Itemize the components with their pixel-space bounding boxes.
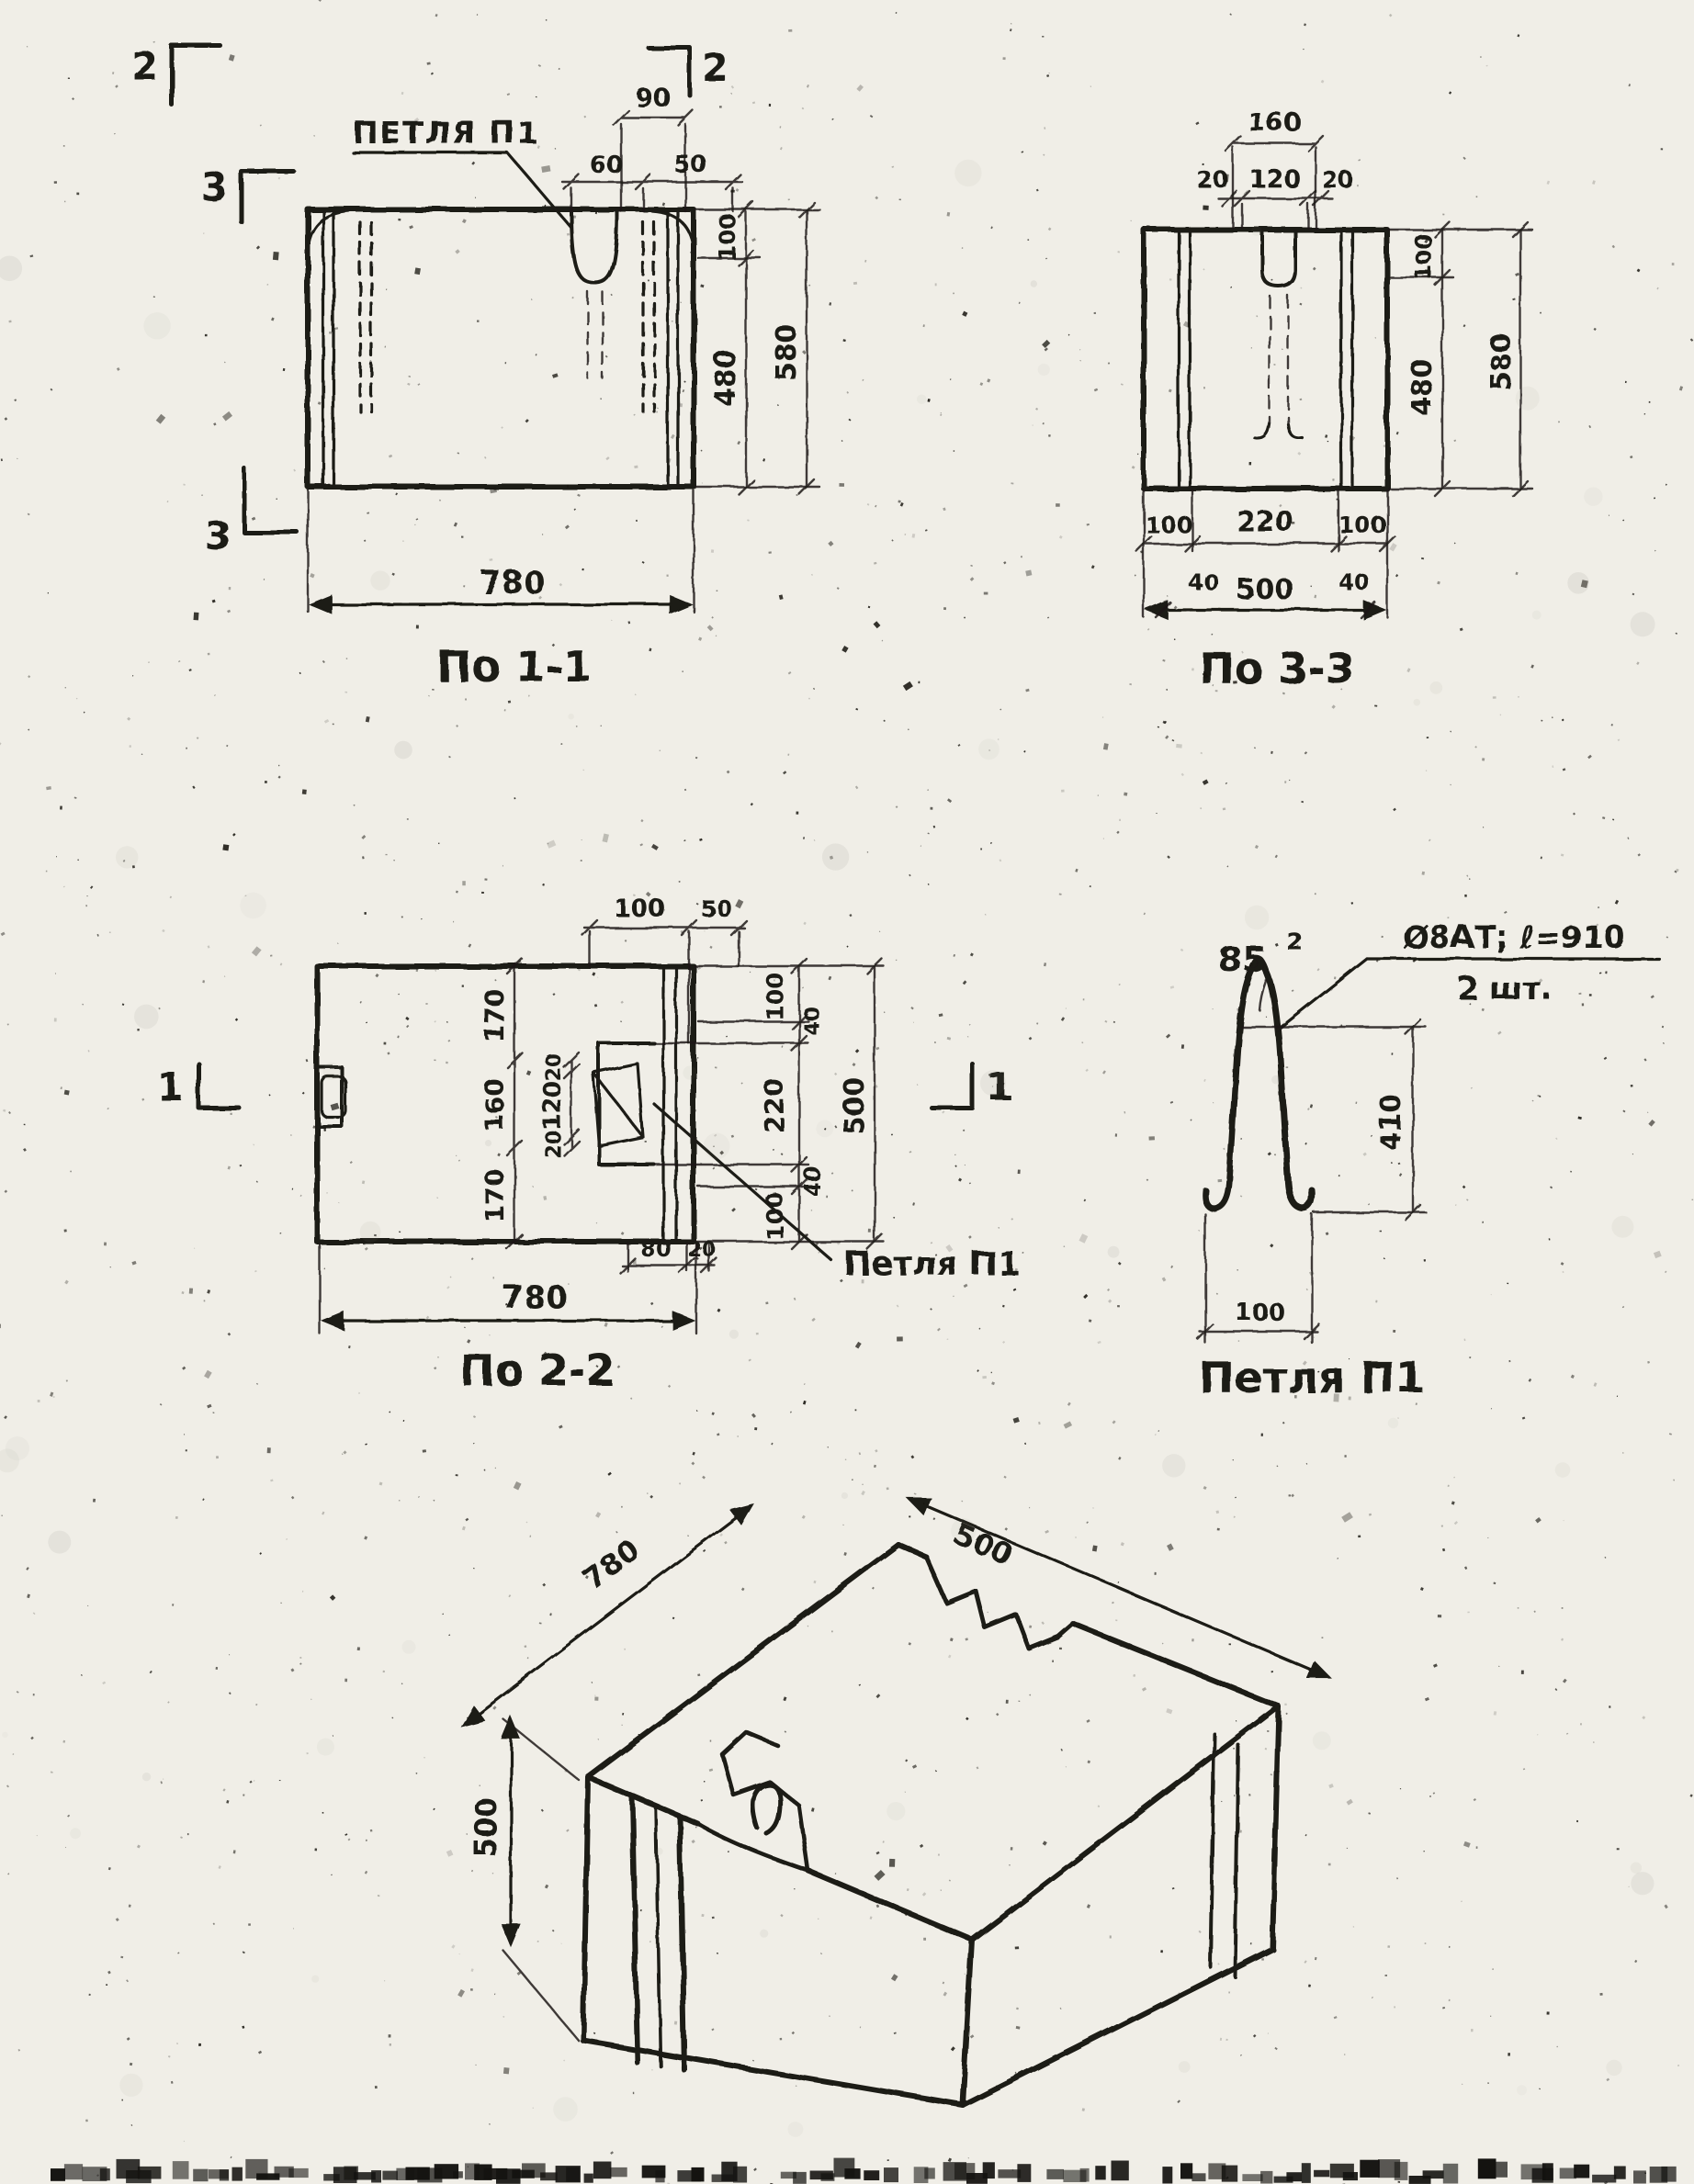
dim-label: 220 xyxy=(759,1079,789,1132)
dim-line-160 xyxy=(1225,136,1323,151)
dim-label: 480 xyxy=(710,350,742,408)
section-view-1-1: ПЕТЛЯ П1 90 60 50 100 480 580 780 По 1-1… xyxy=(131,43,819,692)
dim-label: 780 xyxy=(576,1532,646,1597)
dim-label: 120 xyxy=(1249,165,1301,194)
dim-label: 500 xyxy=(1237,574,1294,606)
loop-callout-label: ПЕТЛЯ П1 xyxy=(353,115,540,151)
dim-label: 40 xyxy=(1338,569,1369,595)
dim-line-row1 xyxy=(1136,536,1395,551)
groove-lines-right-face xyxy=(1211,1734,1238,1976)
loop-pocket-recess xyxy=(571,210,617,283)
dim-label: 410 xyxy=(1375,1094,1407,1152)
dim-label: 120 xyxy=(539,1081,567,1131)
dim-chain-right-inner xyxy=(792,959,807,1249)
detail-title: Петля П1 xyxy=(1199,1353,1425,1402)
loop-in-pocket xyxy=(753,1784,780,1833)
cut-mark-2-left xyxy=(172,46,220,105)
loop-leader-line xyxy=(353,152,571,228)
groove-center-line xyxy=(656,1807,661,2066)
cropped-text-smudge xyxy=(51,2158,1677,2184)
bottom-edges xyxy=(583,1949,1272,2105)
dim-label: 50 xyxy=(701,895,733,922)
blueprint-canvas: ПЕТЛЯ П1 90 60 50 100 480 580 780 По 1-1… xyxy=(0,0,1694,2184)
note-leader xyxy=(1259,981,1266,1010)
dim-label: 100 xyxy=(714,213,740,261)
dim-line-410 xyxy=(1406,1019,1420,1220)
dim-label: 20 xyxy=(1322,166,1354,193)
section-view-3-3: 160 20 120 20 100 480 580 100 220 100 50… xyxy=(1136,107,1532,693)
loop-leg-left xyxy=(1205,963,1257,1209)
loop-leg-right xyxy=(1260,963,1312,1209)
loop-top-section xyxy=(1262,231,1295,287)
dim-label: 40 xyxy=(801,1166,825,1196)
edge-top-right xyxy=(898,1545,1279,1706)
hidden-lines-right xyxy=(643,222,654,411)
dim-label: 60 xyxy=(590,152,623,179)
dim-label: 20 xyxy=(688,1239,717,1262)
groove-wall-lines xyxy=(663,969,676,1239)
dim-label: 500 xyxy=(839,1077,871,1135)
hidden-lines-left xyxy=(360,222,371,411)
loop-detail-view: 85 2 Ø8АТ; ℓ=910 2 шт. 410 100 Петля П1 xyxy=(1198,919,1659,1402)
loop-pocket-plan xyxy=(599,1043,654,1165)
dim-label: 100 xyxy=(614,895,665,923)
ext-lines-height-iso xyxy=(503,1719,579,2041)
dim-line-780-iso xyxy=(464,1506,751,1725)
dim-label: 160 xyxy=(480,1079,510,1132)
cut-mark-label: 2 xyxy=(131,43,158,88)
dim-line-inner-right xyxy=(739,202,753,494)
loop-plate-plan xyxy=(593,1064,643,1146)
dim-label: 90 xyxy=(636,83,672,113)
loop-callout-label: Петля П1 xyxy=(843,1245,1021,1283)
corner-arc-left xyxy=(308,211,349,252)
view-title-3-3: По 3-3 xyxy=(1199,644,1354,693)
dim-label: 780 xyxy=(503,1279,568,1316)
cut-mark-3-top xyxy=(242,172,294,222)
cut-mark-3-bottom xyxy=(244,468,298,533)
section-view-2-2: 100 50 170 160 170 20 120 20 100 40 220 … xyxy=(157,895,1021,1395)
dim-label: 170 xyxy=(480,989,510,1042)
loop-hooks-hidden xyxy=(1255,424,1303,438)
dim-label: 780 xyxy=(480,565,546,602)
dim-label: 220 xyxy=(1237,506,1294,538)
groove-wall-lines xyxy=(1179,232,1352,486)
cut-mark-label: 3 xyxy=(205,513,232,558)
dim-label: 100 xyxy=(762,1192,788,1240)
rod-spec-line2: 2 шт. xyxy=(1457,971,1553,1008)
edge-front-right xyxy=(972,1706,1279,1940)
vertical-edges xyxy=(583,1706,1279,2105)
view-title-1-1: По 1-1 xyxy=(436,642,592,692)
loop-hidden-lines xyxy=(588,292,603,378)
isometric-view: 780 500 500 xyxy=(464,1499,1328,2105)
dim-label: 40 xyxy=(801,1007,825,1036)
dim-label: 100 xyxy=(1145,512,1192,538)
groove-lines-right xyxy=(668,212,678,485)
view-title-2-2: По 2-2 xyxy=(459,1345,615,1395)
dim-label: 170 xyxy=(480,1169,510,1222)
dim-label: 20 xyxy=(543,1053,566,1082)
cut-mark-label: 2 xyxy=(702,45,728,90)
edge-top-left xyxy=(588,1545,898,1777)
cut-mark-1-left xyxy=(198,1064,239,1108)
cut-mark-label: 1 xyxy=(157,1064,184,1109)
dim-label: 500 xyxy=(469,1797,503,1859)
dim-label: 100 xyxy=(1410,233,1437,281)
dim-label: 480 xyxy=(1406,359,1439,417)
block-outline-1-1 xyxy=(308,209,694,487)
rod-spec-line1: Ø8АТ; ℓ=910 xyxy=(1403,919,1626,956)
dim-label: 580 xyxy=(771,324,803,382)
dim-label: 100 xyxy=(1338,512,1386,538)
corner-arc-right xyxy=(652,211,694,252)
dim-label: 80 xyxy=(640,1236,671,1262)
dim-label: 40 xyxy=(1188,569,1218,595)
dim-label: 20 xyxy=(543,1131,566,1159)
scanned-blueprint-page: ПЕТЛЯ П1 90 60 50 100 480 580 780 По 1-1… xyxy=(0,0,1694,2184)
dim-label: 160 xyxy=(1248,107,1301,137)
dim-label: 580 xyxy=(1485,333,1518,391)
block-outline-3-3 xyxy=(1144,230,1387,489)
loop-legs-hidden xyxy=(1270,296,1288,424)
groove-lines-left xyxy=(323,212,333,485)
dim-label: 50 xyxy=(674,152,707,179)
cut-mark-label: 3 xyxy=(201,164,228,209)
bend-note-sup: 2 xyxy=(1286,929,1303,956)
bend-note-label: 85 xyxy=(1218,940,1267,980)
dim-label: 100 xyxy=(1236,1300,1285,1327)
cut-mark-1-right xyxy=(932,1064,972,1108)
